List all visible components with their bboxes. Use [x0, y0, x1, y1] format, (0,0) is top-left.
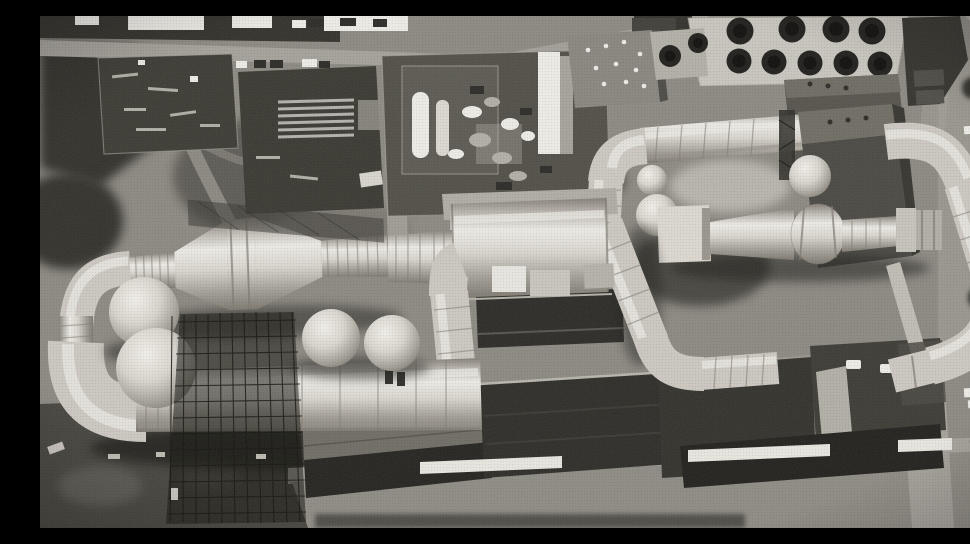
photo-canvas [40, 16, 970, 528]
photo-texture [40, 16, 970, 528]
aerial-photo [40, 16, 970, 528]
